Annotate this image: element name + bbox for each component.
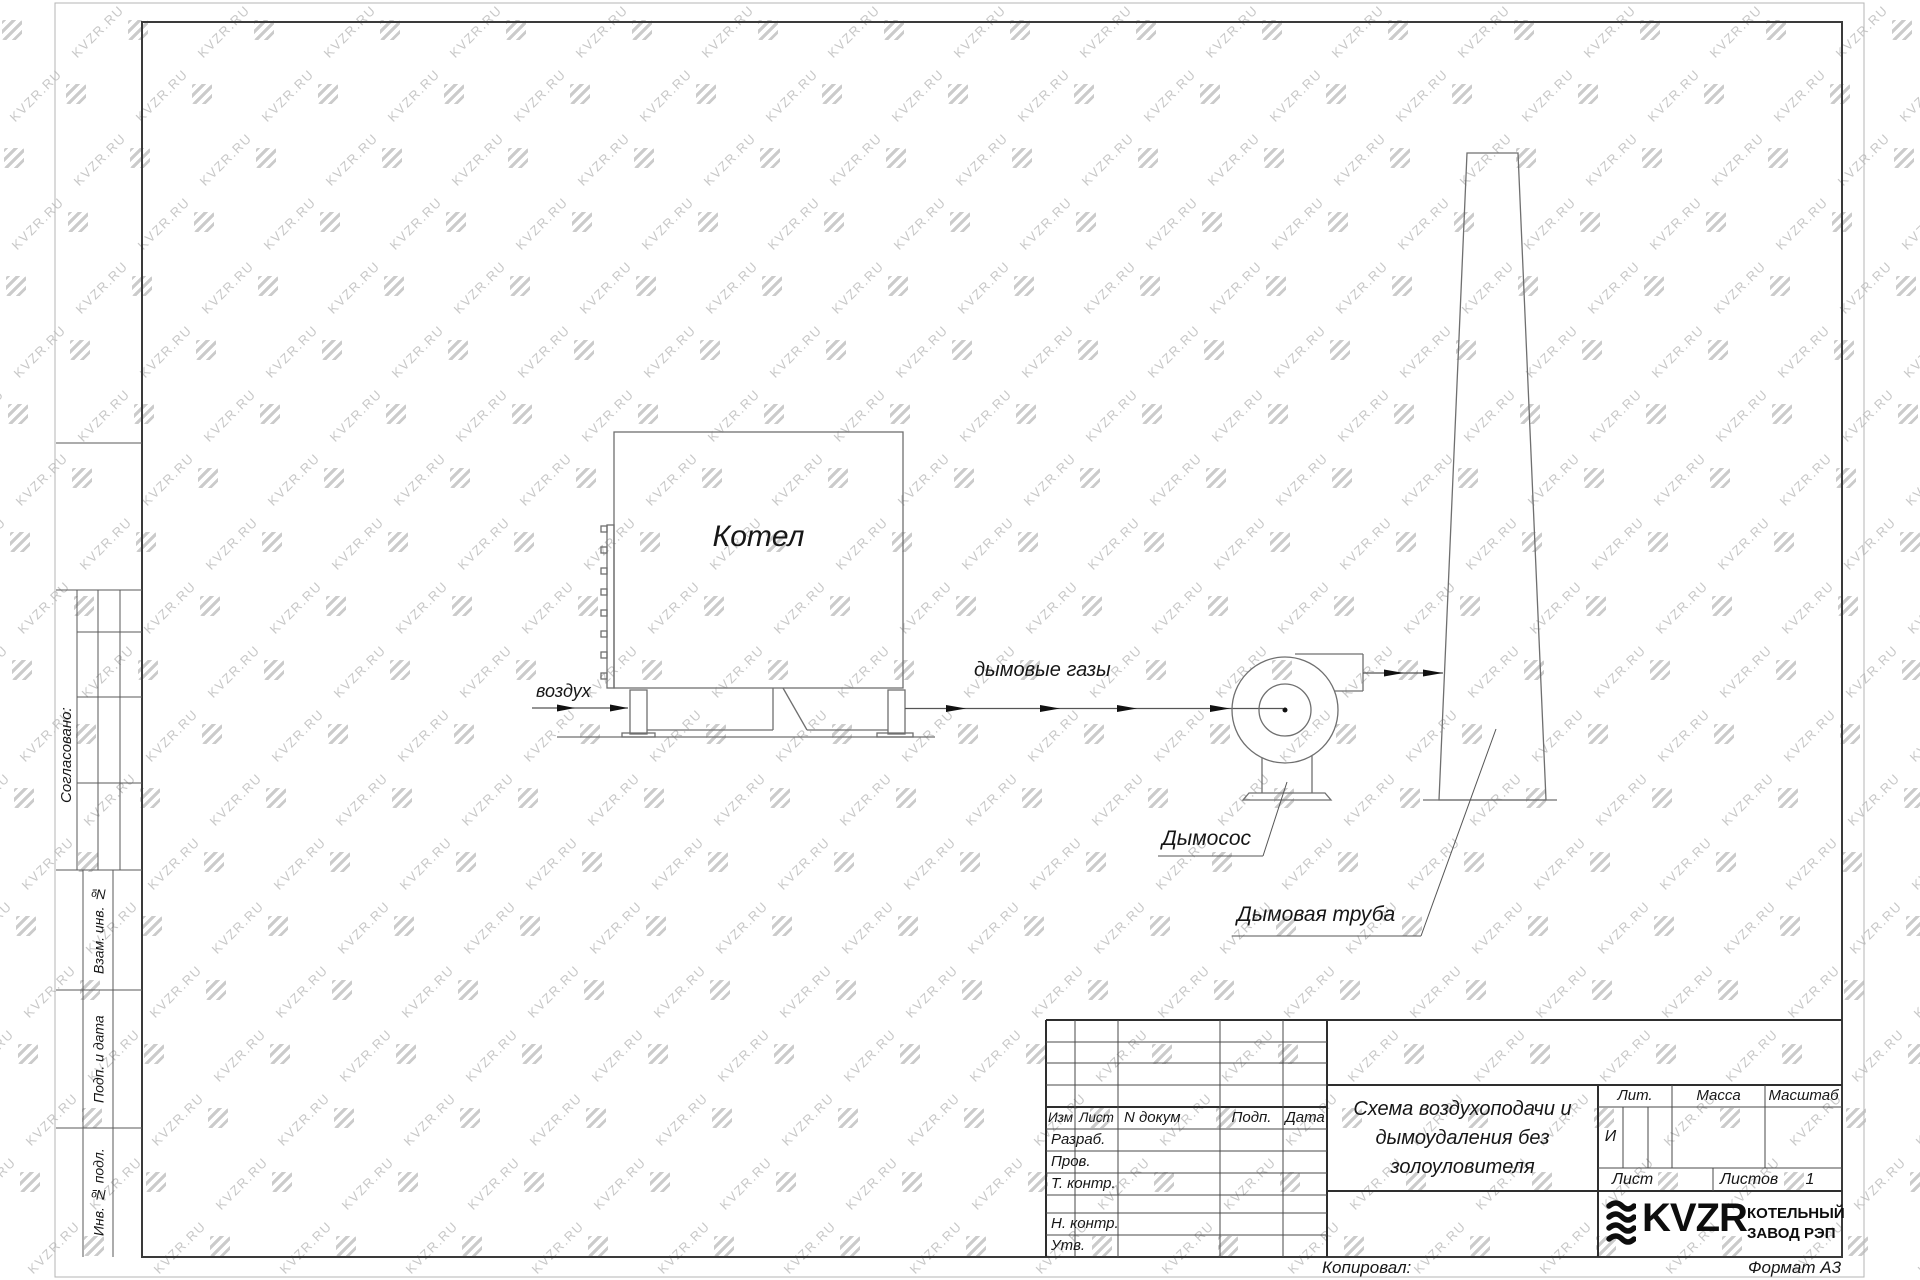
- boiler-outline: [557, 432, 935, 737]
- company-name-line1: КОТЕЛЬНЫЙ: [1747, 1205, 1845, 1222]
- chimney-label: Дымовая труба: [1237, 903, 1395, 927]
- air-label: воздух: [536, 681, 591, 702]
- frame-border: [142, 22, 1842, 1257]
- masshtab-header: Масштаб: [1765, 1087, 1842, 1104]
- format-label: Формат А3: [1748, 1258, 1841, 1278]
- document-title: Схема воздухоподачи и дымоудаления без з…: [1327, 1085, 1598, 1191]
- title-line-1: Схема воздухоподачи и: [1353, 1095, 1571, 1124]
- company-name-line2: ЗАВОД РЭП: [1747, 1225, 1835, 1242]
- air-flow-arrows: [532, 705, 628, 712]
- lit-value: И: [1598, 1128, 1623, 1146]
- fan-label: Дымосос: [1162, 827, 1251, 851]
- drawing-sheet: KVZR.RUKVZR.RUKVZR.RUKVZR.RUKVZR.RUKVZR.…: [0, 0, 1920, 1280]
- copied-by-label: Копировал:: [1322, 1258, 1411, 1278]
- flue-flow-arrows: [905, 705, 1283, 712]
- rev-col-ndoc: N докум: [1124, 1109, 1181, 1126]
- boiler-label: Котел: [614, 520, 903, 554]
- approved-label: Согласовано:: [56, 640, 77, 870]
- company-brand: KVZR: [1642, 1196, 1747, 1241]
- listov-label: Листов: [1720, 1171, 1778, 1189]
- chimney-outline: [1423, 153, 1557, 800]
- title-line-3: золоуловителя: [1390, 1153, 1534, 1182]
- role-razrab: Разраб.: [1051, 1131, 1105, 1148]
- rev-col-list: Лист: [1075, 1110, 1118, 1125]
- flue-gas-label: дымовые газы: [974, 659, 1111, 682]
- list-label: Лист: [1612, 1171, 1653, 1189]
- role-prov: Пров.: [1051, 1153, 1091, 1170]
- role-nkontr: Н. контр.: [1051, 1215, 1119, 1232]
- massa-header: Масса: [1672, 1087, 1765, 1104]
- company-logo-icon: [1606, 1199, 1636, 1247]
- title-line-2: дымоудаления без: [1375, 1124, 1549, 1153]
- listov-value: 1: [1795, 1171, 1825, 1189]
- role-tkontr: Т. контр.: [1051, 1175, 1116, 1192]
- rev-col-izm: Изм: [1046, 1110, 1075, 1125]
- rev-col-podp: Подп.: [1220, 1109, 1283, 1126]
- fan-outlet-arrows: [1363, 670, 1443, 677]
- vzam-inv-label: Взам. инв. №: [84, 872, 113, 988]
- lit-header: Лит.: [1598, 1087, 1672, 1104]
- inv-podl-label: Инв. № подл.: [84, 1130, 113, 1255]
- podp-data-label: Подп. и дата: [84, 992, 113, 1126]
- role-utv: Утв.: [1051, 1237, 1085, 1254]
- fan-outline: [1232, 654, 1363, 800]
- rev-col-data: Дата: [1283, 1109, 1327, 1126]
